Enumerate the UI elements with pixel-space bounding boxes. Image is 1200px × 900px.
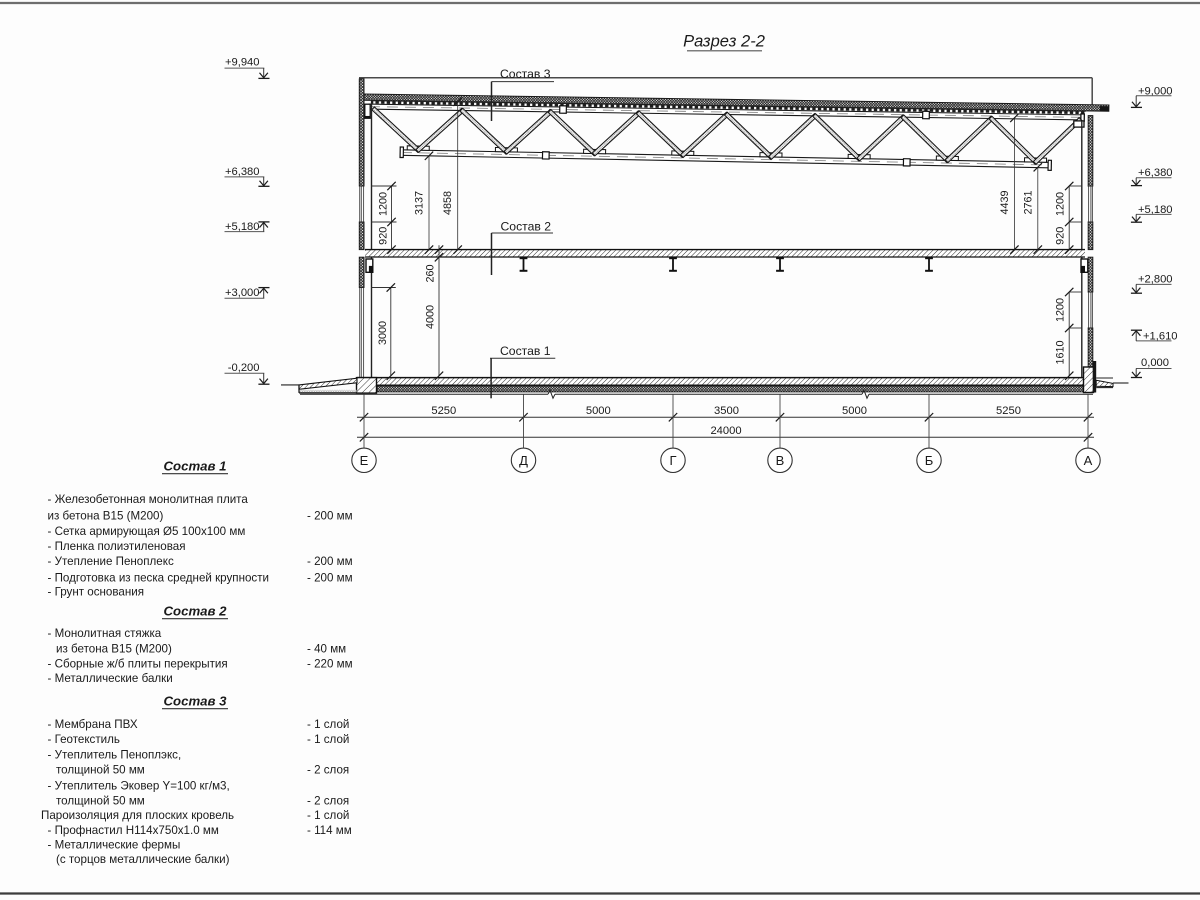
- svg-text:- 220 мм: - 220 мм: [307, 658, 353, 671]
- svg-text:Разрез 2-2: Разрез 2-2: [683, 33, 765, 51]
- svg-text:260: 260: [425, 264, 437, 282]
- svg-text:Пароизоляция для плоских крове: Пароизоляция для плоских кровель: [41, 809, 234, 822]
- svg-text:Б: Б: [925, 453, 934, 468]
- svg-text:4439: 4439: [999, 190, 1011, 214]
- svg-text:1200: 1200: [1055, 192, 1067, 216]
- svg-text:1200: 1200: [378, 192, 390, 216]
- svg-text:Состав 3: Состав 3: [500, 67, 551, 81]
- svg-text:Г: Г: [669, 453, 676, 468]
- svg-text:+6,380: +6,380: [225, 166, 260, 178]
- svg-text:- Мембрана ПВХ: - Мембрана ПВХ: [48, 718, 138, 731]
- svg-text:+2,800: +2,800: [1138, 273, 1173, 285]
- svg-text:920: 920: [1055, 227, 1067, 245]
- svg-text:толщиной 50 мм: толщиной 50 мм: [56, 764, 145, 777]
- svg-text:- 2 слоя: - 2 слоя: [307, 764, 349, 777]
- svg-text:- 200 мм: - 200 мм: [307, 572, 353, 585]
- svg-text:Состав 1: Состав 1: [500, 344, 551, 358]
- svg-text:А: А: [1084, 453, 1093, 468]
- svg-text:4858: 4858: [442, 191, 454, 215]
- svg-text:Состав 1: Состав 1: [164, 459, 227, 474]
- svg-text:-0,200: -0,200: [228, 362, 260, 374]
- svg-text:3000: 3000: [377, 321, 389, 345]
- svg-text:- Пленка полиэтиленовая: - Пленка полиэтиленовая: [48, 540, 186, 553]
- svg-text:5250: 5250: [996, 405, 1021, 417]
- svg-text:- Геотекстиль: - Геотекстиль: [48, 733, 120, 746]
- svg-text:- 200 мм: - 200 мм: [307, 555, 353, 568]
- svg-text:- Сборные ж/б плиты перекрытия: - Сборные ж/б плиты перекрытия: [48, 658, 228, 671]
- svg-text:из бетона В15 (М200): из бетона В15 (М200): [48, 510, 164, 523]
- svg-text:Состав 2: Состав 2: [164, 604, 228, 619]
- svg-text:3137: 3137: [414, 191, 426, 215]
- svg-text:- Грунт основания: - Грунт основания: [48, 586, 145, 599]
- svg-text:5000: 5000: [586, 405, 611, 417]
- svg-text:- Утепление Пеноплекс: - Утепление Пеноплекс: [48, 555, 174, 568]
- svg-text:- 200 мм: - 200 мм: [307, 510, 353, 523]
- svg-text:- Монолитная стяжка: - Монолитная стяжка: [48, 627, 162, 640]
- svg-text:- 114 мм: - 114 мм: [307, 824, 352, 837]
- svg-text:Д: Д: [519, 453, 528, 468]
- svg-text:- 1 слой: - 1 слой: [307, 718, 349, 731]
- svg-text:+3,000: +3,000: [225, 287, 260, 299]
- svg-text:5000: 5000: [842, 405, 867, 417]
- svg-text:- Утеплитель Пеноплэкс,: - Утеплитель Пеноплэкс,: [48, 749, 182, 762]
- svg-text:2761: 2761: [1022, 190, 1034, 214]
- svg-text:- Металлические фермы: - Металлические фермы: [48, 839, 181, 852]
- svg-text:- 1 слой: - 1 слой: [307, 733, 349, 746]
- svg-text:1200: 1200: [1055, 298, 1067, 322]
- svg-text:Е: Е: [360, 453, 369, 468]
- svg-text:- Профнастил Н114х750х1.0 мм: - Профнастил Н114х750х1.0 мм: [48, 824, 219, 837]
- svg-text:- 40 мм: - 40 мм: [307, 643, 346, 656]
- svg-text:+9,940: +9,940: [225, 57, 260, 69]
- svg-text:толщиной 50 мм: толщиной 50 мм: [56, 795, 145, 808]
- svg-text:Состав 3: Состав 3: [164, 694, 228, 709]
- svg-text:В: В: [776, 453, 785, 468]
- svg-text:Состав 2: Состав 2: [501, 219, 552, 233]
- svg-text:3500: 3500: [714, 405, 739, 417]
- svg-text:- Железобетонная монолитная п: - Железобетонная монолитная плита: [48, 493, 249, 506]
- svg-text:- 1 слой: - 1 слой: [307, 809, 349, 822]
- svg-text:- 2 слоя: - 2 слоя: [307, 795, 349, 808]
- svg-text:0,000: 0,000: [1141, 357, 1169, 369]
- svg-text:920: 920: [378, 227, 390, 245]
- svg-text:- Металлические балки: - Металлические балки: [48, 672, 173, 685]
- svg-text:1610: 1610: [1055, 340, 1067, 364]
- svg-text:- Сетка армирующая Ø5 100х100: - Сетка армирующая Ø5 100х100 мм: [48, 525, 246, 538]
- svg-text:(с торцов металлические балки): (с торцов металлические балки): [56, 853, 230, 866]
- svg-text:4000: 4000: [425, 305, 437, 329]
- svg-text:24000: 24000: [710, 425, 741, 437]
- svg-text:из бетона В15 (М200): из бетона В15 (М200): [56, 643, 172, 656]
- svg-text:- Подготовка из песка средней: - Подготовка из песка средней крупности: [48, 572, 270, 585]
- svg-text:5250: 5250: [431, 405, 456, 417]
- svg-text:- Утеплитель Эковер Y=100 кг/м: - Утеплитель Эковер Y=100 кг/м3,: [48, 780, 230, 793]
